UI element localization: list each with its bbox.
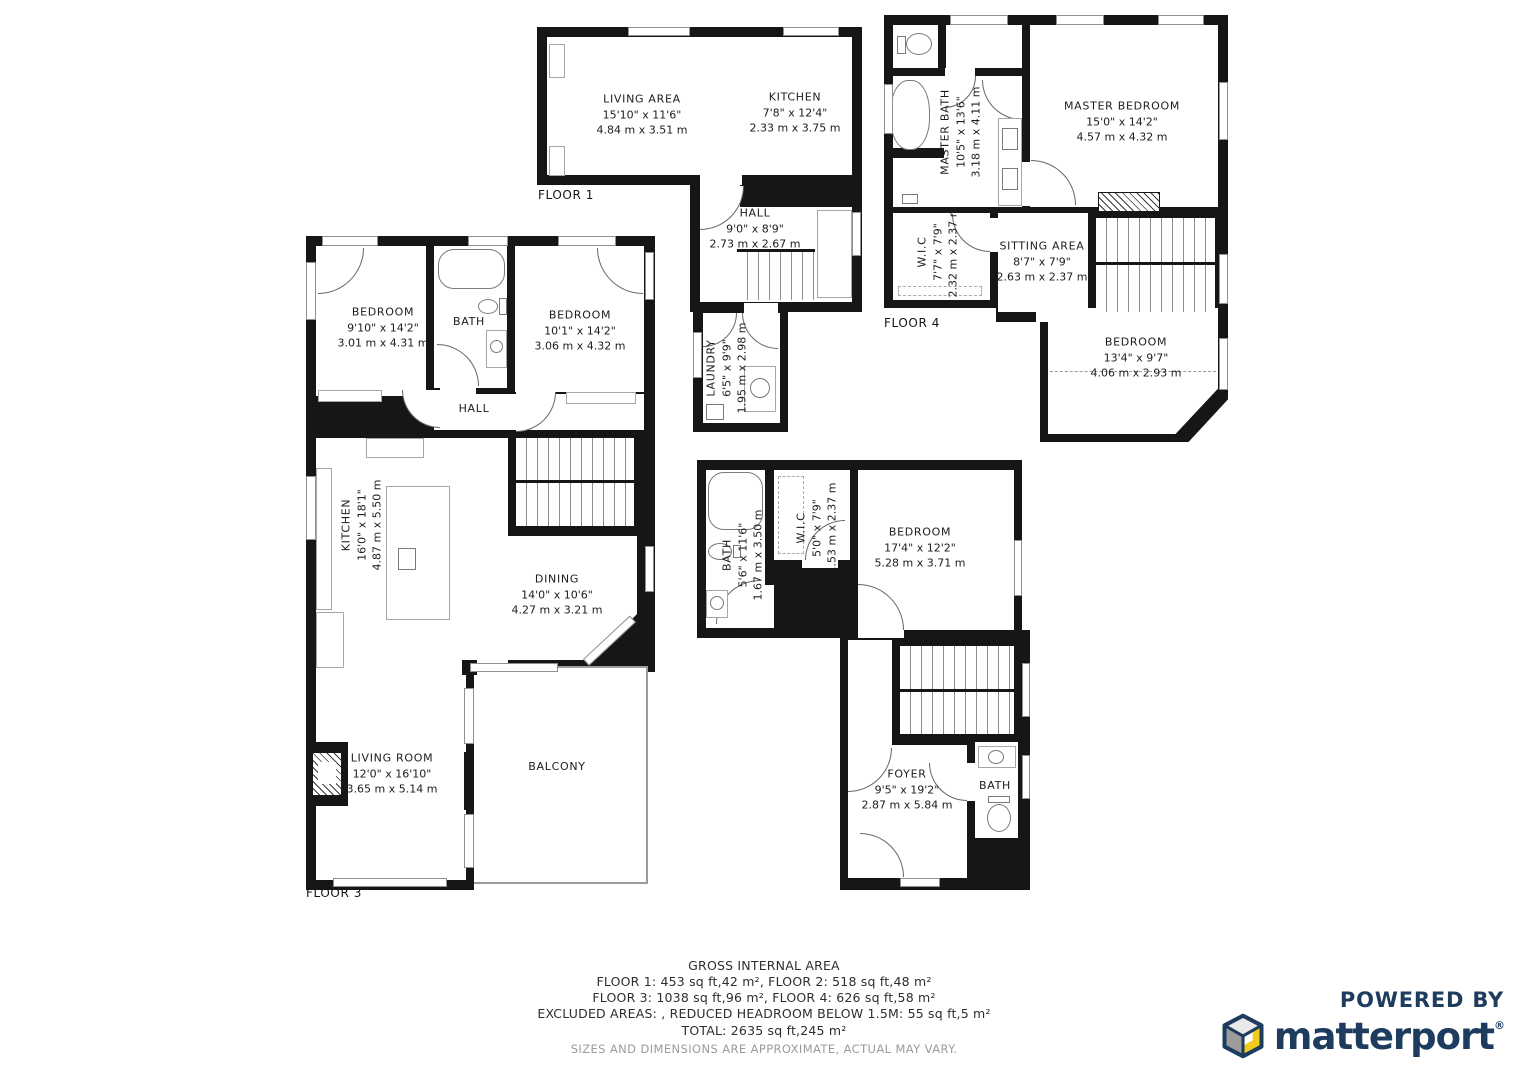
toilet-tank bbox=[897, 36, 906, 54]
label-f1-hall: HALL9'0" x 8'9"2.73 m x 2.67 m bbox=[710, 206, 801, 253]
counter bbox=[316, 468, 332, 610]
window bbox=[464, 814, 474, 868]
label-f4-wic: W.I.C7'7" x 7'9"2.32 m x 2.37 m bbox=[915, 207, 962, 298]
floor1-tag: FLOOR 1 bbox=[538, 188, 594, 202]
window bbox=[783, 27, 839, 36]
sink bbox=[1002, 168, 1018, 190]
window bbox=[1056, 15, 1104, 25]
window bbox=[1022, 755, 1030, 799]
label-f3-balcony: BALCONY bbox=[528, 759, 585, 775]
label-f2-foyer: FOYER9'5" x 19'2"2.87 m x 5.84 m bbox=[862, 767, 953, 814]
label-f2-bedroom: BEDROOM17'4" x 12'2"5.28 m x 3.71 m bbox=[875, 525, 966, 572]
matterport-branding: POWERED BY matterport® bbox=[1221, 988, 1504, 1059]
window bbox=[306, 262, 316, 320]
window bbox=[1219, 82, 1228, 140]
window-balcony-door bbox=[464, 688, 474, 744]
window bbox=[306, 476, 316, 540]
wall-stub bbox=[975, 68, 1022, 76]
bathtub bbox=[438, 249, 505, 289]
kitchen-island bbox=[386, 486, 450, 620]
window bbox=[1022, 663, 1030, 717]
label-f1-kitchen: KITCHEN7'8" x 12'4"2.33 m x 3.75 m bbox=[750, 90, 841, 137]
island-sink bbox=[398, 548, 416, 570]
door-opening bbox=[967, 763, 975, 801]
wardrobe bbox=[318, 390, 382, 402]
summary-line1: FLOOR 1: 453 sq ft,42 m², FLOOR 2: 518 s… bbox=[464, 974, 1064, 990]
sink bbox=[490, 340, 503, 353]
label-f4-mbed: MASTER BEDROOM15'0" x 14'2"4.57 m x 4.32… bbox=[1064, 99, 1180, 146]
door-opening bbox=[1036, 312, 1066, 322]
window bbox=[558, 236, 616, 246]
summary-line2: FLOOR 3: 1038 sq ft,96 m², FLOOR 4: 626 … bbox=[464, 990, 1064, 1006]
wall-stub bbox=[938, 25, 946, 68]
label-f3-dining: DINING14'0" x 10'6"4.27 m x 3.21 m bbox=[512, 572, 603, 619]
door-opening bbox=[700, 175, 742, 185]
closet bbox=[549, 44, 565, 78]
window bbox=[884, 84, 893, 134]
counter bbox=[316, 612, 344, 668]
sink bbox=[1002, 128, 1018, 150]
closet bbox=[549, 146, 565, 176]
wall-f1-hall-top bbox=[740, 183, 862, 207]
stove bbox=[366, 438, 424, 458]
powered-by-text: POWERED BY bbox=[1221, 988, 1504, 1012]
door-opening bbox=[744, 303, 778, 313]
window bbox=[645, 546, 654, 592]
label-f2-bath2: BATH bbox=[979, 778, 1011, 794]
matterport-wordmark: matterport® bbox=[1274, 1018, 1504, 1055]
label-f2-wic: W.I.C5'0" x 7'9"1.53 m x 2.37 m bbox=[794, 483, 841, 574]
floorplan-page: LIVING AREA15'10" x 11'6"4.84 m x 3.51 m… bbox=[0, 0, 1528, 1080]
registered-mark: ® bbox=[1494, 1019, 1504, 1032]
door-opening bbox=[1022, 162, 1030, 206]
floor3-tag: FLOOR 3 bbox=[306, 886, 362, 900]
window bbox=[852, 212, 861, 256]
wall-stub bbox=[893, 68, 945, 76]
window bbox=[1014, 540, 1022, 596]
window bbox=[693, 332, 702, 378]
window-dining bbox=[470, 663, 558, 672]
label-f4-mbath: MASTER BATH10'5" x 13'6"3.18 m x 4.11 m bbox=[938, 87, 985, 178]
label-f1-living: LIVING AREA15'10" x 11'6"4.84 m x 3.51 m bbox=[597, 92, 688, 139]
floor4-tag: FLOOR 4 bbox=[884, 316, 940, 330]
label-f4-bedroom: BEDROOM13'4" x 9'7"4.06 m x 2.93 m bbox=[1091, 335, 1182, 382]
wardrobe bbox=[566, 392, 636, 404]
label-f3-hall: HALL bbox=[459, 401, 490, 417]
label-f3-bath: BATH bbox=[453, 314, 485, 330]
window bbox=[900, 878, 940, 887]
label-f3-living: LIVING ROOM12'0" x 16'10"3.65 m x 5.14 m bbox=[347, 751, 438, 798]
gross-internal-area-summary: GROSS INTERNAL AREA FLOOR 1: 453 sq ft,4… bbox=[464, 958, 1064, 1056]
window bbox=[1158, 15, 1204, 25]
sink bbox=[902, 194, 918, 204]
room-f3-balcony bbox=[466, 666, 648, 884]
washer-drum bbox=[750, 378, 770, 398]
label-f3-bedroom1: BEDROOM9'10" x 14'2"3.01 m x 4.31 m bbox=[338, 305, 429, 352]
summary-line4: TOTAL: 2635 sq ft,245 m² bbox=[464, 1023, 1064, 1039]
window bbox=[322, 236, 378, 246]
fireplace-core bbox=[318, 762, 336, 784]
label-f1-laundry: LAUNDRY6'5" x 9'9"1.95 m x 2.98 m bbox=[704, 323, 751, 414]
toilet-tank bbox=[988, 796, 1010, 803]
window bbox=[628, 27, 690, 36]
stair-rail bbox=[1096, 262, 1215, 265]
closet-hatched bbox=[1098, 192, 1160, 212]
stairs-f4 bbox=[1096, 218, 1215, 312]
toilet-bowl bbox=[906, 33, 932, 55]
window bbox=[1219, 338, 1228, 390]
window bbox=[950, 15, 1008, 25]
summary-line3: EXCLUDED AREAS: , REDUCED HEADROOM BELOW… bbox=[464, 1006, 1064, 1022]
window bbox=[645, 252, 654, 300]
label-f3-kitchen: KITCHEN16'0" x 18'1"4.87 m x 5.50 m bbox=[339, 480, 386, 571]
bathtub bbox=[890, 80, 930, 150]
label-f3-bedroom2: BEDROOM10'1" x 14'2"3.06 m x 4.32 m bbox=[535, 308, 626, 355]
matterport-cube-icon bbox=[1221, 1013, 1265, 1059]
summary-title: GROSS INTERNAL AREA bbox=[464, 958, 1064, 974]
stair-rail bbox=[900, 689, 1014, 692]
label-f4-sitting: SITTING AREA8'7" x 7'9"2.63 m x 2.37 m bbox=[997, 239, 1088, 286]
sink bbox=[988, 750, 1004, 764]
toilet-bowl bbox=[987, 804, 1011, 832]
window bbox=[468, 236, 508, 246]
window bbox=[1219, 254, 1228, 304]
stair-landing bbox=[817, 210, 852, 298]
stairs-f1 bbox=[737, 252, 815, 300]
door-opening bbox=[858, 630, 904, 638]
toilet-bowl bbox=[478, 299, 498, 314]
wall-balcony-mid bbox=[464, 752, 474, 810]
floor2-tag: FLOOR 2 bbox=[696, 626, 752, 640]
stair-rail bbox=[516, 480, 634, 483]
summary-disclaimer: SIZES AND DIMENSIONS ARE APPROXIMATE, AC… bbox=[464, 1042, 1064, 1057]
toilet-tank bbox=[499, 298, 507, 315]
door-opening bbox=[440, 388, 476, 396]
label-f2-bath: BATH5'6" x 11'6"1.67 m x 3.50 m bbox=[720, 510, 767, 601]
